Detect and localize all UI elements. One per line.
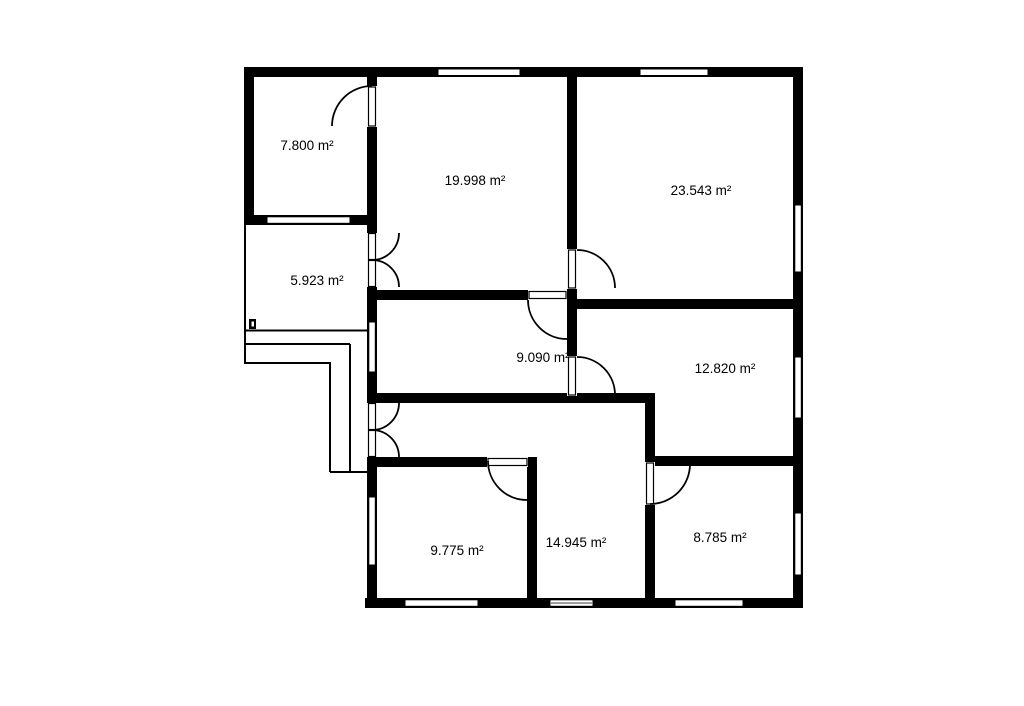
room-label-room-7-800: 7.800 m²: [280, 138, 334, 153]
double-door-entrance-leaf-1: [369, 404, 376, 430]
double-door-entrance-leaf-2: [369, 431, 376, 457]
room-label-room-12-820: 12.820 m²: [695, 361, 756, 376]
door-room9775-leaf-1: [488, 459, 527, 466]
double-door-balcony-leaf-1: [369, 234, 376, 260]
door-living-to-room9090-swing-arc-1: [528, 300, 567, 339]
balcony-gate-marker-inner: [252, 322, 255, 327]
window-right-room8785: [795, 513, 802, 575]
door-room23543-leaf-1: [569, 250, 576, 288]
window-top-living: [438, 69, 520, 76]
floor-plan: 7.800 m²5.923 m²19.998 m²23.543 m²9.090 …: [0, 0, 1024, 701]
wall-hall-top: [367, 393, 655, 403]
window-bottom-room8785: [675, 600, 743, 607]
window-bedroom-balcony: [267, 217, 350, 224]
window-right-room23: [795, 205, 802, 272]
room-label-hall-14-945: 14.945 m²: [546, 535, 607, 550]
room-label-room-23-543: 23.543 m²: [671, 183, 732, 198]
wall-outer-left: [244, 67, 254, 225]
wall-room23-bottom: [567, 299, 803, 309]
window-left-room9090: [369, 322, 376, 372]
room-label-room-8-785: 8.785 m²: [693, 530, 747, 545]
door-room7800-swing-arc-1: [332, 86, 372, 126]
wall-outer-top: [244, 67, 803, 77]
room-label-room-19-998: 19.998 m²: [445, 173, 506, 188]
window-top-room23: [640, 69, 708, 76]
room-label-room-9-775: 9.775 m²: [430, 543, 484, 558]
door-living-to-room9090-leaf-1: [529, 292, 566, 299]
door-room7800-leaf-1: [369, 87, 376, 126]
window-bottom-room9775: [405, 600, 478, 607]
room-label-balcony-5-923: 5.923 m²: [290, 273, 344, 288]
door-room23543-swing-arc-1: [577, 250, 615, 288]
room-label-room-9-090: 9.090 m²: [516, 350, 570, 365]
wall-room12820-bottom: [648, 456, 803, 466]
door-room8785-swing-arc-1: [650, 464, 690, 504]
door-room8785-leaf-1: [647, 463, 654, 504]
wall-room9775-right: [527, 457, 537, 608]
window-left-room9775: [369, 497, 376, 565]
double-door-balcony-leaf-2: [369, 261, 376, 287]
floor-plan-svg: 7.800 m²5.923 m²19.998 m²23.543 m²9.090 …: [0, 0, 1024, 701]
window-right-room12820: [795, 357, 802, 418]
door-room12820-swing-arc-1: [577, 357, 615, 395]
